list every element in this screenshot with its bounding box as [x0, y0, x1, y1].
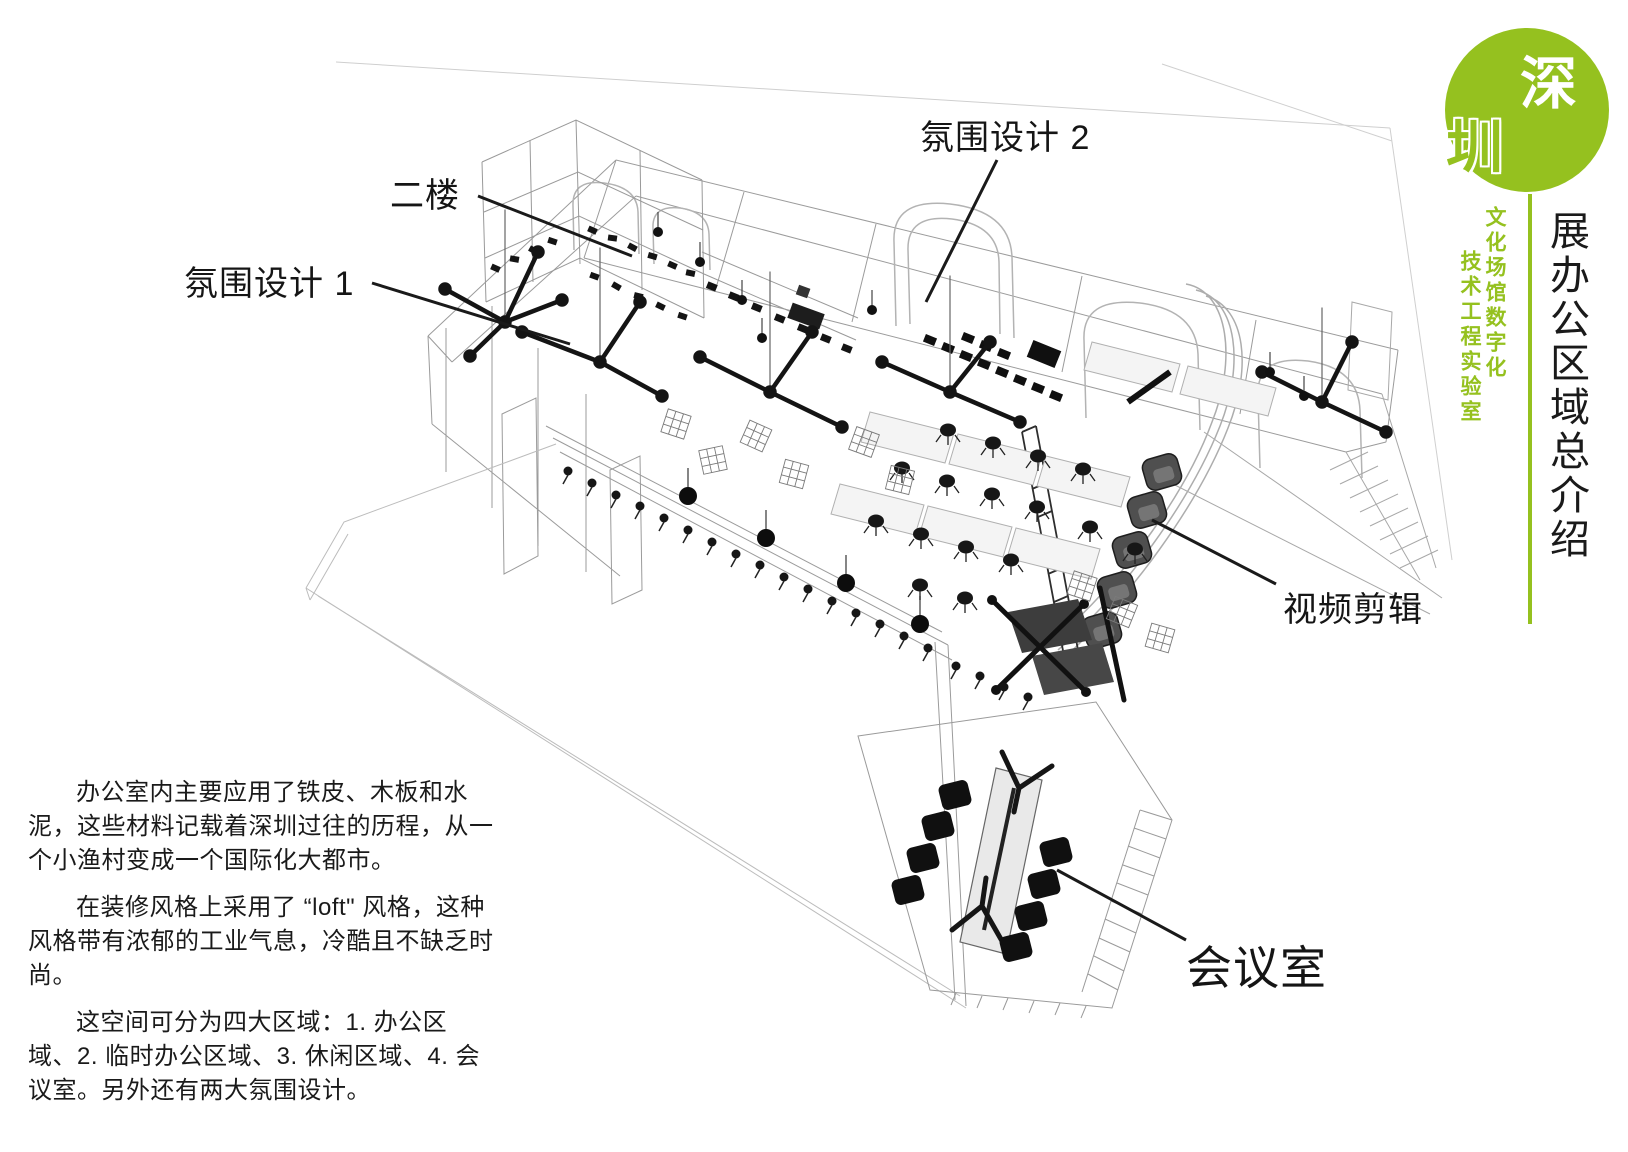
label-meeting-room: 会议室	[1186, 932, 1327, 998]
description-paragraph-zones: 这空间可分为四大区域：1. 办公区域、2. 临时办公区域、3. 休闲区域、4. …	[28, 1006, 494, 1108]
description-block: 办公室内主要应用了铁皮、木板和水泥，这些材料记载着深圳过往的历程，从一个小渔村变…	[28, 776, 494, 1121]
roof-lines	[336, 62, 1452, 560]
bar-stools	[563, 467, 1033, 711]
tagline-column-left: 技术工程实验室	[1459, 250, 1480, 425]
label-video-editing: 视频剪辑	[1283, 582, 1423, 631]
logo-character-zhen: 圳	[1446, 120, 1503, 177]
arched-windows	[573, 182, 1362, 478]
vertical-green-rule	[1528, 194, 1532, 624]
label-second-floor: 二楼	[390, 168, 460, 217]
tagline-column-right: 文化场馆数字化	[1484, 206, 1505, 381]
description-paragraph-loft-style: 在装修风格上采用了 “loft" 风格，这种风格带有浓郁的工业气息，冷酷且不缺乏…	[28, 891, 494, 993]
laptop-desk	[787, 285, 824, 330]
label-atmosphere-design-1: 氛围设计 1	[184, 256, 354, 305]
label-atmosphere-design-2: 氛围设计 2	[920, 110, 1090, 159]
description-paragraph-materials: 办公室内主要应用了铁皮、木板和水泥，这些材料记载着深圳过往的历程，从一个小渔村变…	[28, 776, 494, 878]
page-title-vertical: 展办公区域总介绍	[1546, 210, 1586, 562]
bar-pendant-lamps	[679, 468, 929, 633]
logo-character-shen: 深	[1520, 56, 1577, 113]
slide-canvas: 二楼 氛围设计 1 氛围设计 2 视频剪辑 会议室 办公室内主要应用了铁皮、木板…	[0, 0, 1628, 1152]
